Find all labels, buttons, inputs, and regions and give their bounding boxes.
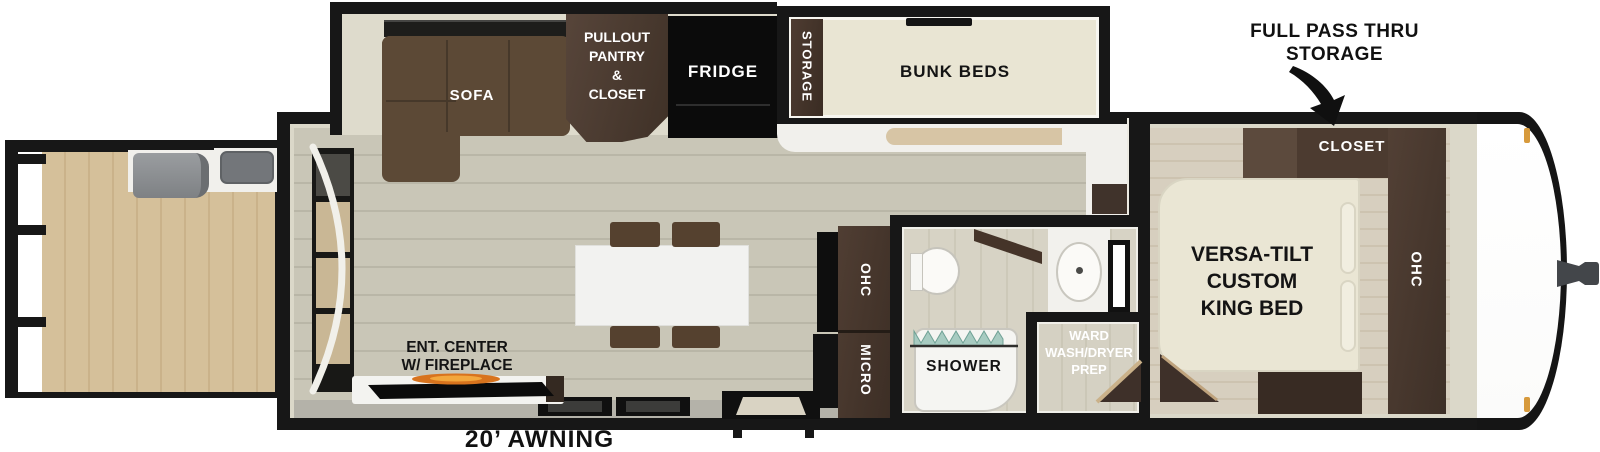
king-bed-label-line1: VERSA-TILT xyxy=(1152,243,1352,267)
rear-door-pane xyxy=(316,258,350,308)
ward-label-line2: WASH/DRYER xyxy=(1028,346,1150,361)
shower-label: SHOWER xyxy=(917,358,1011,376)
kitchen-micro-label: MICRO xyxy=(858,325,874,415)
rear-door-pane xyxy=(316,202,350,252)
fridge-detail-line xyxy=(676,104,770,106)
sofa-window xyxy=(384,20,568,37)
pantry-label-line4: CLOSET xyxy=(566,86,668,102)
pass-thru-label-line1: FULL PASS THRU xyxy=(1237,21,1432,43)
ent-center-console xyxy=(352,376,564,404)
grill-icon xyxy=(133,153,209,198)
kitchen-column-cabinet xyxy=(1092,184,1130,214)
deck-railing xyxy=(18,152,42,392)
king-bed-label-line3: KING BED xyxy=(1152,297,1352,321)
bed-foot-bench xyxy=(1258,372,1362,414)
deck-rail-bar xyxy=(12,154,46,164)
deck-sink-icon xyxy=(220,151,274,184)
marker-light-icon xyxy=(1524,397,1530,412)
island-stool xyxy=(672,222,720,247)
closet-cabinet-step xyxy=(1243,128,1297,178)
rear-door-pane xyxy=(316,314,350,364)
island-stool xyxy=(672,326,720,348)
island-stool xyxy=(610,222,660,247)
bedroom-divider-wall xyxy=(1127,118,1150,222)
bunk-handle xyxy=(906,18,972,26)
side-window-glass xyxy=(626,401,680,412)
pantry-label-line2: PANTRY xyxy=(566,48,668,64)
toilet-tank xyxy=(910,253,923,291)
kitchen-island xyxy=(575,245,749,326)
bedroom-ohc-label: OHC xyxy=(1408,225,1425,315)
fridge-label: FRIDGE xyxy=(668,62,778,82)
entry-door-step xyxy=(736,397,806,415)
awning-label: 20’ AWNING xyxy=(437,426,642,452)
sofa-cushion-line xyxy=(446,40,448,132)
ward-label-line1: WARD xyxy=(1028,329,1150,344)
ent-center-label-line1: ENT. CENTER xyxy=(362,339,552,357)
pass-thru-label-line2: STORAGE xyxy=(1237,44,1432,66)
marker-light-icon xyxy=(1524,128,1530,143)
bunk-storage-label: STORAGE xyxy=(800,22,815,112)
rear-door-pane xyxy=(316,154,350,196)
kitchen-ohc-label: OHC xyxy=(858,235,874,325)
ent-center-label-line2: W/ FIREPLACE xyxy=(362,357,552,375)
sofa-label: SOFA xyxy=(412,87,532,104)
awning-bracket xyxy=(733,430,742,438)
kitchen-countertop xyxy=(886,128,1062,145)
sofa-cushion-line xyxy=(508,40,510,132)
bath-window xyxy=(1108,240,1130,312)
king-bed-label-line2: CUSTOM xyxy=(1152,270,1352,294)
ent-center-end-cabinet xyxy=(546,376,564,402)
island-stool xyxy=(610,326,660,348)
rv-floorplan: SOFA PULLOUT PANTRY & CLOSET FRIDGE STOR… xyxy=(0,0,1600,452)
sofa-seat xyxy=(382,36,570,136)
deck-rail-bar xyxy=(12,225,46,235)
pantry-label-line3: & xyxy=(566,67,668,83)
ward-label-line3: PREP xyxy=(1028,363,1150,378)
nose-cap xyxy=(1477,124,1561,418)
awning-bracket xyxy=(805,430,814,438)
bunk-beds-label: BUNK BEDS xyxy=(855,62,1055,82)
pantry-label-line1: PULLOUT xyxy=(566,29,668,45)
bath-faucet-dot xyxy=(1076,267,1083,274)
deck-rail-bar xyxy=(12,317,46,327)
